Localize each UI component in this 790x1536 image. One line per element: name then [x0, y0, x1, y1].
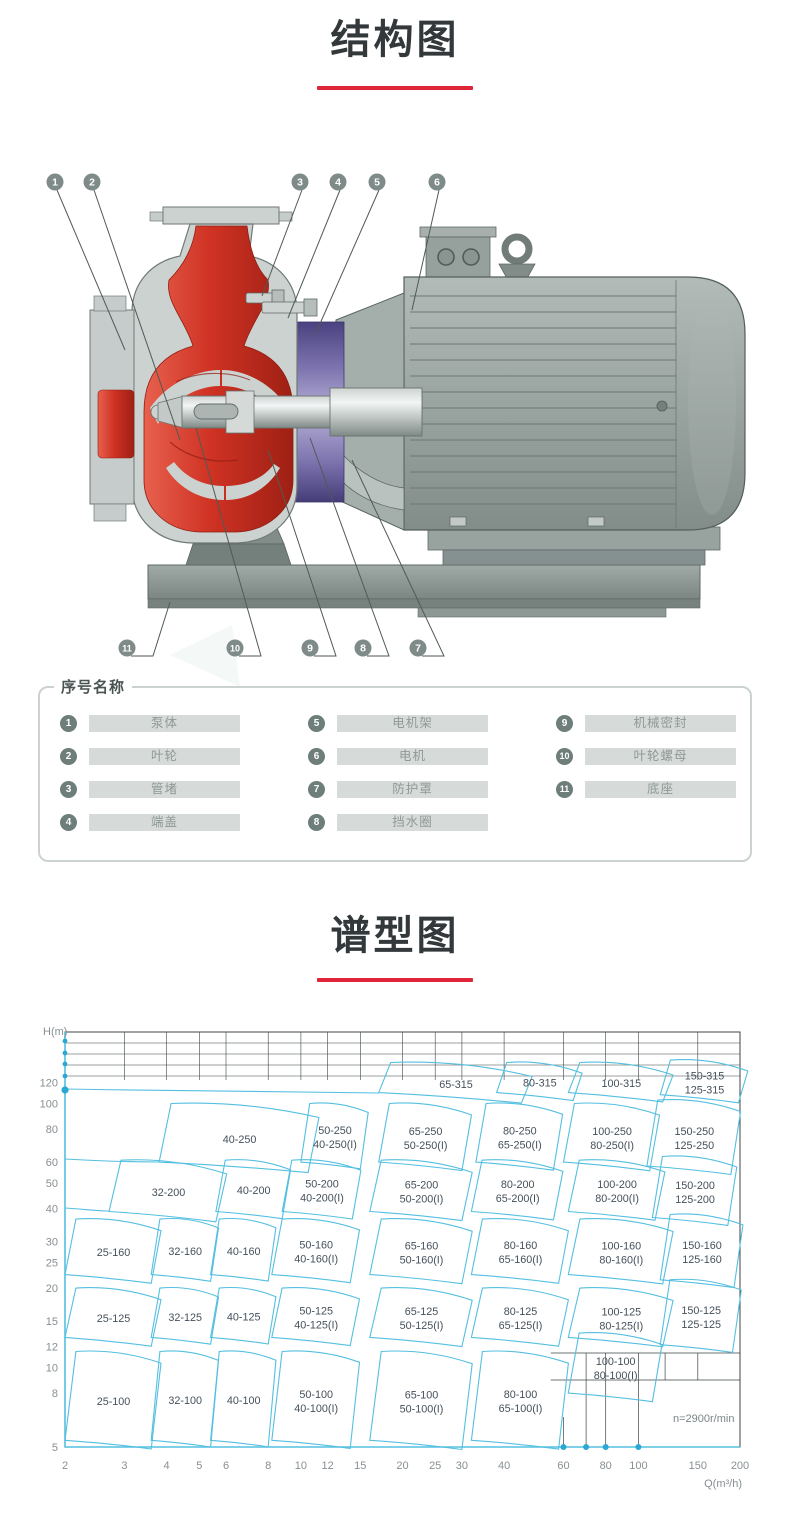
x-tick-label: 2 — [62, 1460, 68, 1472]
chart-region-label: 100-100 — [596, 1356, 636, 1368]
pump-cross-section-figure: 1234561110987 — [0, 150, 790, 690]
y-axis-title: H(m) — [43, 1026, 67, 1038]
callout-number: 3 — [297, 177, 303, 189]
chart-region-label: 80-100(I) — [594, 1370, 638, 1382]
x-tick-label: 15 — [354, 1460, 366, 1472]
structure-section: 结构图 — [0, 16, 790, 862]
chart-region-label: 40-250 — [223, 1134, 257, 1146]
chart-region-label: 50-200 — [305, 1178, 339, 1190]
chart-region-label: 50-160(I) — [400, 1254, 444, 1266]
y-tick-label: 50 — [46, 1178, 58, 1190]
chart-region-label: 50-125 — [299, 1306, 333, 1318]
x-tick-label: 5 — [196, 1460, 202, 1472]
chart-region-label: 100-315 — [601, 1078, 641, 1090]
part-item: 10叶轮螺母 — [556, 747, 736, 765]
chart-region-label: 40-200 — [237, 1185, 271, 1197]
chart-region-label: 125-315 — [685, 1084, 725, 1096]
x-tick-label: 30 — [456, 1460, 468, 1472]
motor — [404, 227, 745, 530]
chart-region-label: 40-125 — [227, 1312, 261, 1324]
chart-region-label: 80-125 — [504, 1306, 538, 1318]
chart-region-label: 32-100 — [168, 1395, 202, 1407]
type-chart-title-underline — [317, 978, 473, 982]
x-tick-label: 80 — [600, 1460, 612, 1472]
part-name-label: 电机架 — [337, 715, 488, 732]
motor-foot — [428, 527, 720, 565]
chart-region-label: 80-200(I) — [595, 1193, 639, 1205]
x-tick-label: 100 — [629, 1460, 647, 1472]
chart-region-label: 50-160 — [299, 1240, 333, 1252]
y-tick-label: 10 — [46, 1363, 58, 1375]
chart-region-label: 80-250 — [503, 1126, 537, 1138]
chart-region-label: 65-250(I) — [498, 1140, 542, 1152]
x-tick-label: 40 — [498, 1460, 510, 1472]
chart-region-label: 32-160 — [168, 1246, 202, 1258]
part-item: 7防护罩 — [308, 780, 488, 798]
chart-region-label: 32-200 — [152, 1187, 186, 1199]
chart-region-label: 50-250 — [318, 1125, 352, 1137]
x-tick-label: 12 — [321, 1460, 333, 1472]
part-number-badge: 2 — [60, 748, 77, 765]
type-chart-section: 谱型图 65-31580-315100-315150-315125-31540-… — [0, 912, 790, 1500]
chart-region-label: 125-250 — [674, 1140, 714, 1152]
part-item: 8挡水圈 — [308, 813, 488, 831]
chart-region-label: 65-125(I) — [499, 1320, 543, 1332]
callout-number: 1 — [52, 177, 58, 189]
structure-title: 结构图 — [0, 16, 790, 64]
chart-region-label: 150-160 — [682, 1240, 722, 1252]
chart-region-label: 80-160 — [504, 1240, 538, 1252]
chart-region-label: 25-100 — [97, 1396, 131, 1408]
chart-region-label: 50-250(I) — [404, 1140, 448, 1152]
callout-number: 6 — [434, 177, 440, 189]
chart-region-label: 80-160(I) — [599, 1254, 643, 1266]
part-name-label: 叶轮 — [89, 748, 240, 765]
callout-number: 9 — [307, 643, 313, 655]
chart-region-label: 80-125(I) — [599, 1320, 643, 1332]
x-tick-label: 60 — [557, 1460, 569, 1472]
part-item: 11底座 — [556, 780, 736, 798]
parts-legend-title: 序号名称 — [54, 676, 132, 697]
chart-region-label: 65-160(I) — [499, 1254, 543, 1266]
x-axis-title: Q(m³/h) — [704, 1478, 742, 1490]
chart-region-label: 25-160 — [97, 1247, 131, 1259]
callout-number: 8 — [360, 643, 366, 655]
y-tick-label: 30 — [46, 1237, 58, 1249]
chart-region-label: 65-100(I) — [499, 1403, 543, 1415]
y-tick-label: 40 — [46, 1204, 58, 1216]
callout-number: 10 — [230, 644, 240, 654]
x-tick-label: 25 — [429, 1460, 441, 1472]
part-name-label: 防护罩 — [337, 781, 488, 798]
chart-region-label: 50-200(I) — [400, 1193, 444, 1205]
chart-region-label: 50-125(I) — [400, 1320, 444, 1332]
chart-region-label: 150-200 — [675, 1180, 715, 1192]
structure-title-underline — [317, 86, 473, 90]
part-name-label: 电机 — [337, 748, 488, 765]
chart-region-label: 125-160 — [682, 1254, 722, 1266]
chart-region-label: 65-160 — [405, 1240, 439, 1252]
chart-region-label: 25-125 — [97, 1313, 131, 1325]
chart-region-label: 125-125 — [681, 1319, 721, 1331]
junction-box — [420, 227, 496, 237]
part-number-badge: 9 — [556, 715, 573, 732]
y-tick-label: 100 — [40, 1099, 58, 1111]
chart-region-label: 150-125 — [681, 1305, 721, 1317]
chart-region-label: 65-315 — [439, 1079, 473, 1091]
keyway — [194, 404, 238, 419]
x-tick-label: 150 — [689, 1460, 707, 1472]
part-number-badge: 10 — [556, 748, 573, 765]
chart-region-label: 32-125 — [168, 1312, 202, 1324]
parts-legend-box: 序号名称 1泵体2叶轮3管堵4端盖5电机架6电机7防护罩8挡水圈9机械密封10叶… — [38, 686, 752, 862]
base-plate — [148, 565, 700, 617]
chart-region-label: 150-250 — [674, 1126, 714, 1138]
part-item: 5电机架 — [308, 714, 488, 732]
callout-number: 7 — [415, 643, 421, 655]
part-number-badge: 6 — [308, 748, 325, 765]
y-tick-label: 80 — [46, 1124, 58, 1136]
chart-region-label: 65-100 — [405, 1389, 439, 1401]
part-number-badge: 7 — [308, 781, 325, 798]
part-number-badge: 4 — [60, 814, 77, 831]
y-tick-label: 120 — [40, 1078, 58, 1090]
callout-number: 5 — [374, 177, 380, 189]
x-tick-label: 200 — [731, 1460, 749, 1472]
part-number-badge: 3 — [60, 781, 77, 798]
callout-leader-line — [131, 602, 170, 656]
chart-region-label: 65-200(I) — [496, 1193, 540, 1205]
chart-region-label: 50-100 — [299, 1389, 333, 1401]
type-chart-title: 谱型图 — [0, 912, 790, 960]
lifting-eye — [505, 237, 529, 261]
x-tick-label: 10 — [295, 1460, 307, 1472]
chart-region-label: 100-200 — [597, 1179, 637, 1191]
part-name-label: 底座 — [585, 781, 736, 798]
chart-region-label: 65-125 — [405, 1306, 439, 1318]
discharge-flange — [163, 207, 279, 224]
part-number-badge: 11 — [556, 781, 573, 798]
parts-legend-columns: 1泵体2叶轮3管堵4端盖5电机架6电机7防护罩8挡水圈9机械密封10叶轮螺母11… — [40, 688, 750, 846]
pump-selection-chart: 65-31580-315100-315150-315125-31540-2505… — [40, 1025, 790, 1500]
chart-region-label: 80-200 — [501, 1179, 535, 1191]
part-name-label: 机械密封 — [585, 715, 736, 732]
y-tick-label: 60 — [46, 1157, 58, 1169]
chart-region-label: 40-125(I) — [294, 1320, 338, 1332]
y-tick-label: 25 — [46, 1258, 58, 1270]
chart-region-label: 40-100(I) — [294, 1403, 338, 1415]
chart-region-label: 40-160 — [227, 1246, 261, 1258]
chart-region-label: 50-100(I) — [400, 1403, 444, 1415]
chart-region-label: 40-160(I) — [294, 1254, 338, 1266]
part-name-label: 端盖 — [89, 814, 240, 831]
speed-annotation: n=2900r/min — [673, 1413, 734, 1425]
x-tick-label: 20 — [396, 1460, 408, 1472]
y-tick-label: 8 — [52, 1388, 58, 1400]
callout-number: 4 — [335, 177, 341, 189]
chart-region-label: 125-200 — [675, 1194, 715, 1206]
part-item: 2叶轮 — [60, 747, 240, 765]
parts-legend-column: 1泵体2叶轮3管堵4端盖 — [60, 714, 240, 846]
callout-number: 11 — [122, 644, 132, 654]
part-item: 4端盖 — [60, 813, 240, 831]
selection-chart-svg: 65-31580-315100-315150-315125-31540-2505… — [40, 1025, 750, 1495]
chart-region-label: 80-315 — [523, 1077, 557, 1089]
parts-legend-column: 5电机架6电机7防护罩8挡水圈 — [308, 714, 488, 846]
part-item: 1泵体 — [60, 714, 240, 732]
chart-region-label: 40-250(I) — [313, 1139, 357, 1151]
y-tick-label: 5 — [52, 1442, 58, 1454]
chart-region-label: 80-100 — [504, 1389, 538, 1401]
chart-region-label: 100-125 — [601, 1306, 641, 1318]
part-number-badge: 5 — [308, 715, 325, 732]
parts-legend-column: 9机械密封10叶轮螺母11底座 — [556, 714, 736, 846]
chart-region-label: 65-200 — [405, 1179, 439, 1191]
x-tick-label: 4 — [164, 1460, 170, 1472]
y-tick-label: 20 — [46, 1283, 58, 1295]
chart-region-label: 40-200(I) — [300, 1192, 344, 1204]
chart-region-label: 100-250 — [592, 1126, 632, 1138]
part-name-label: 管堵 — [89, 781, 240, 798]
y-tick-label: 15 — [46, 1316, 58, 1328]
chart-region-label: 150-315 — [685, 1070, 725, 1082]
callout-number: 2 — [89, 177, 95, 189]
part-item: 6电机 — [308, 747, 488, 765]
x-tick-label: 6 — [223, 1460, 229, 1472]
x-tick-label: 8 — [265, 1460, 271, 1472]
chart-region-label: 100-160 — [601, 1240, 641, 1252]
part-item: 3管堵 — [60, 780, 240, 798]
part-name-label: 泵体 — [89, 715, 240, 732]
part-name-label: 挡水圈 — [337, 814, 488, 831]
x-tick-label: 3 — [121, 1460, 127, 1472]
chart-region-label: 40-100 — [227, 1395, 261, 1407]
chart-region-label: 65-250 — [409, 1126, 443, 1138]
chart-region-label: 80-250(I) — [590, 1140, 634, 1152]
part-item: 9机械密封 — [556, 714, 736, 732]
part-number-badge: 8 — [308, 814, 325, 831]
part-number-badge: 1 — [60, 715, 77, 732]
y-tick-label: 12 — [46, 1342, 58, 1354]
part-name-label: 叶轮螺母 — [585, 748, 736, 765]
